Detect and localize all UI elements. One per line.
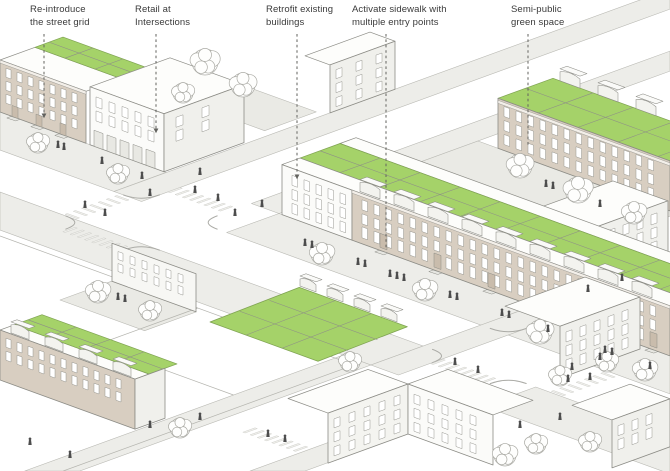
annotation-semi-public-green-space: Semi-public green space [511,4,564,29]
annotation-re-introduce-street-grid: Re-introduce the street grid [30,4,90,29]
annotation-retail-at-intersections: Retail at Intersections [135,4,190,29]
annotation-label: Retail at Intersections [135,4,190,28]
annotation-label: Semi-public green space [511,4,564,28]
axonometric-diagram [0,0,670,471]
building-row-southwest [0,315,177,429]
annotation-retrofit-existing-buildings: Retrofit existing buildings [266,4,333,29]
annotation-label: Activate sidewalk with multiple entry po… [352,4,447,28]
annotation-label: Re-introduce the street grid [30,4,90,28]
diagram-stage: Re-introduce the street grid Retail at I… [0,0,670,471]
annotation-activate-sidewalk-entries: Activate sidewalk with multiple entry po… [352,4,447,29]
annotation-label: Retrofit existing buildings [266,4,333,28]
